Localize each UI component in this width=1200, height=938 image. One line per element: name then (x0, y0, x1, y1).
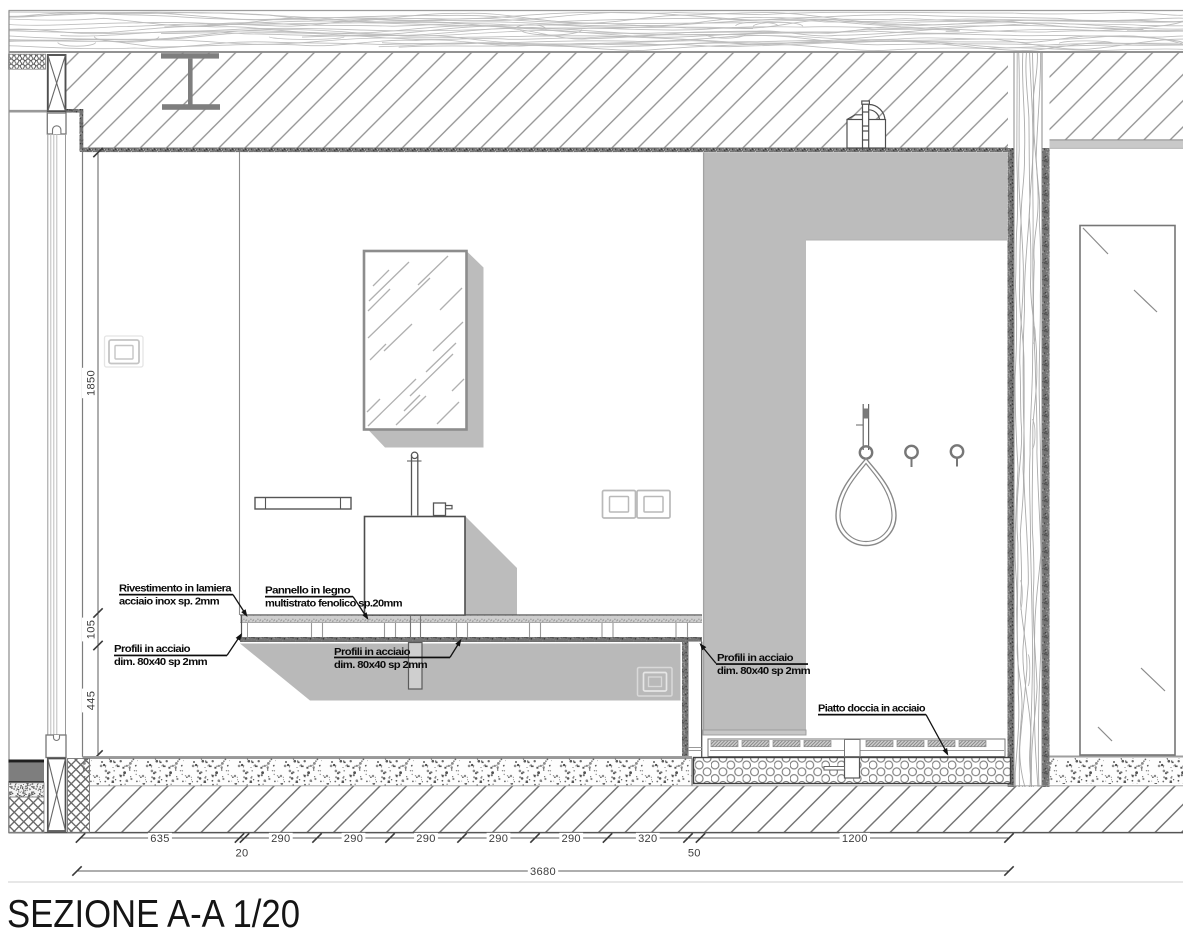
svg-text:Profili in acciaio: Profili in acciaio (717, 653, 793, 664)
svg-text:dim. 80x40 sp 2mm: dim. 80x40 sp 2mm (114, 657, 207, 668)
svg-text:dim. 80x40 sp 2mm: dim. 80x40 sp 2mm (334, 660, 427, 671)
svg-text:290: 290 (344, 833, 363, 845)
svg-text:multistrato fenolico sp.20mm: multistrato fenolico sp.20mm (265, 599, 402, 610)
svg-text:Profili in acciaio: Profili in acciaio (334, 647, 410, 658)
svg-text:1850: 1850 (86, 370, 98, 396)
svg-text:Rivestimento in lamiera: Rivestimento in lamiera (119, 584, 232, 595)
svg-text:3680: 3680 (530, 866, 556, 878)
svg-text:Piatto doccia in acciaio: Piatto doccia in acciaio (818, 704, 925, 715)
svg-text:320: 320 (638, 833, 657, 845)
svg-text:SEZIONE A-A 1/20: SEZIONE A-A 1/20 (7, 893, 300, 936)
svg-text:Profili in acciaio: Profili in acciaio (114, 644, 190, 655)
svg-text:445: 445 (86, 691, 98, 710)
svg-text:Pannello in legno: Pannello in legno (265, 586, 350, 597)
svg-text:290: 290 (489, 833, 508, 845)
svg-text:635: 635 (150, 833, 169, 845)
svg-text:1200: 1200 (842, 833, 868, 845)
svg-text:105: 105 (86, 620, 98, 639)
svg-text:290: 290 (271, 833, 290, 845)
svg-text:50: 50 (688, 848, 701, 860)
svg-text:20: 20 (236, 848, 249, 860)
svg-text:290: 290 (416, 833, 435, 845)
svg-text:acciaio inox sp. 2mm: acciaio inox sp. 2mm (119, 597, 219, 608)
svg-text:dim. 80x40 sp 2mm: dim. 80x40 sp 2mm (717, 666, 810, 677)
svg-text:290: 290 (561, 833, 580, 845)
